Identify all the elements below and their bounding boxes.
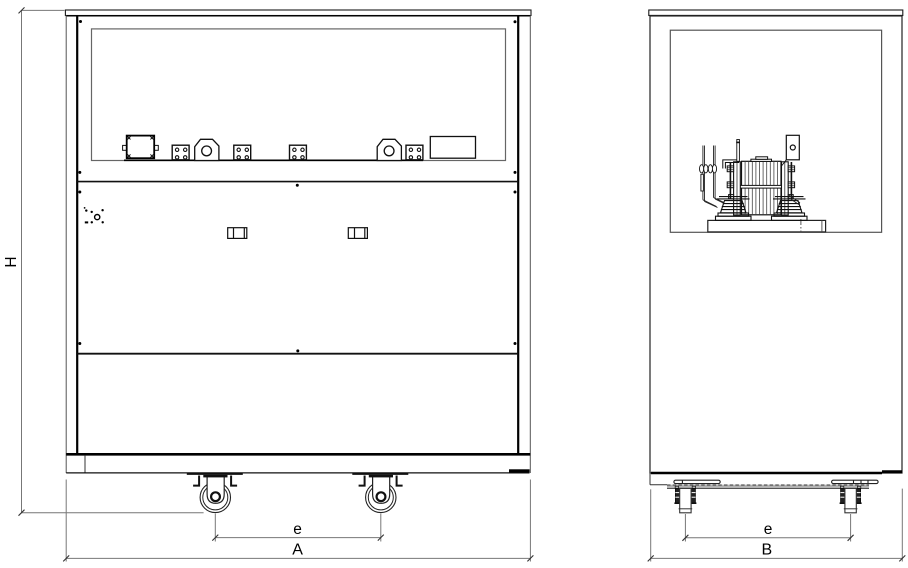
svg-text:e: e	[764, 521, 773, 538]
svg-text:B: B	[761, 542, 772, 559]
svg-text:e: e	[293, 521, 302, 538]
svg-text:H: H	[3, 256, 20, 267]
svg-text:A: A	[292, 542, 303, 559]
